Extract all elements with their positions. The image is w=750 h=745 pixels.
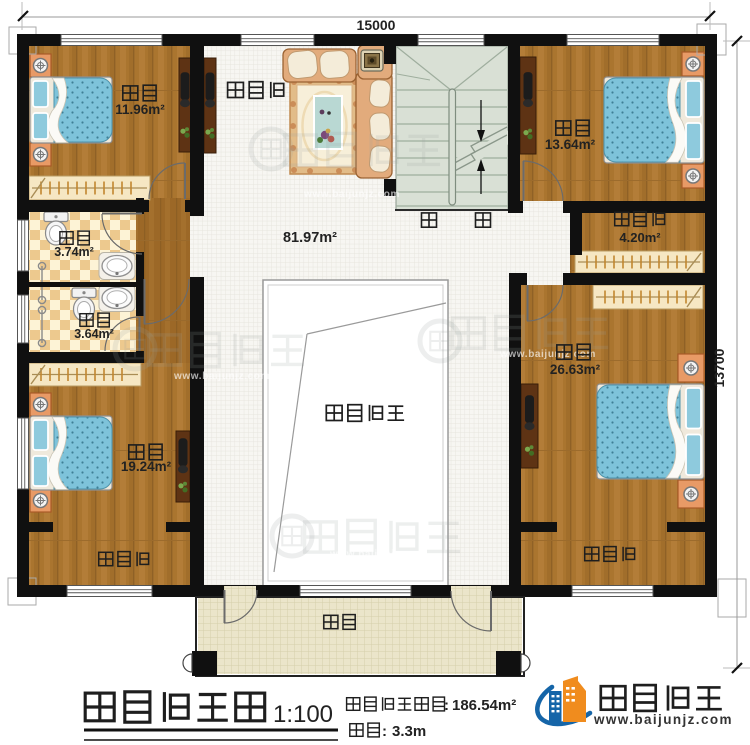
svg-text:11.96m²: 11.96m²	[115, 102, 165, 117]
svg-text:186.54m²: 186.54m²	[452, 697, 516, 714]
svg-text:19.24m²: 19.24m²	[121, 459, 172, 474]
svg-text:www.baijunjz.com: www.baijunjz.com	[303, 189, 400, 200]
svg-text:3.74m²: 3.74m²	[54, 245, 94, 259]
svg-text:www.baijunjz.com: www.baijunjz.com	[593, 712, 733, 727]
svg-text::: :	[382, 723, 387, 740]
svg-text:1:100: 1:100	[273, 701, 333, 728]
svg-text:13700: 13700	[711, 348, 727, 387]
svg-text:15000: 15000	[357, 17, 396, 33]
svg-text:www.baijunjz.com: www.baijunjz.com	[173, 371, 270, 382]
svg-text:13.64m²: 13.64m²	[545, 137, 596, 152]
svg-text:4.20m²: 4.20m²	[619, 230, 661, 245]
svg-text::: :	[444, 697, 449, 714]
svg-text:81.97m²: 81.97m²	[283, 230, 337, 246]
svg-text:3.3m: 3.3m	[392, 723, 426, 740]
svg-text:26.63m²: 26.63m²	[550, 362, 601, 377]
svg-text:3.64m²: 3.64m²	[74, 327, 114, 341]
svg-text:www.baijunjz.com: www.baijunjz.com	[329, 549, 426, 560]
